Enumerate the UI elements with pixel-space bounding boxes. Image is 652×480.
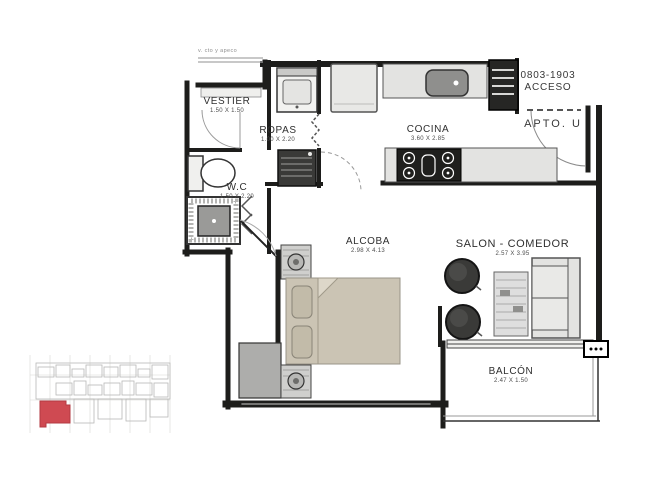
floor-plan-page: v. cto y apeco VESTIER 1.50 X 1.50 ROPAS… [0,0,652,480]
meter-box [584,341,608,357]
vestier-window [198,58,263,97]
closet-block [239,343,281,398]
wc-label: W.C [207,182,267,194]
cocina-label-block: COCINA 3.60 X 2.85 [393,124,463,142]
balcony-window [447,340,593,348]
washer [277,68,317,112]
wc-label-block: W.C 1.50 X 2.20 [207,182,267,200]
ropas-label: ROPAS [243,125,313,137]
sofa [532,258,580,338]
coffee-table-rug [494,272,528,336]
window-annotation: v. cto y apeco [198,48,237,54]
alcoba-dims: 2.98 X 4.13 [333,248,403,255]
dryer [278,150,316,186]
corridor-door-arc [321,152,361,190]
bifold-door [312,114,319,146]
acceso-label: ACCESO [512,82,584,94]
ropas-dims: 1.00 X 2.20 [243,137,313,144]
balcon-label: BALCÓN [480,366,542,378]
ropas-label-block: ROPAS 1.00 X 2.20 [243,125,313,143]
building-keyplan [30,355,170,433]
salon-chair-2 [446,305,482,339]
bed [286,278,400,364]
salon-label-block: SALON - COMEDOR 2.57 X 3.95 [455,238,570,258]
salon-chair-1 [445,259,481,293]
kitchen-sink [426,70,468,96]
balcon-label-block: BALCÓN 2.47 X 1.50 [480,366,542,384]
wc-dims: 1.50 X 2.20 [207,194,267,201]
fridge [331,64,377,112]
stove [397,149,461,181]
vestier-label-block: VESTIER 1.50 X 1.50 [191,96,263,114]
vestier-dims: 1.50 X 1.50 [191,108,263,115]
keyplan-highlight-unit [40,401,70,427]
alcoba-label: ALCOBA [333,236,403,248]
cocina-label: COCINA [393,124,463,136]
apto-label: APTO. U [517,118,589,131]
nightstand-bottom [281,365,311,398]
balcon-dims: 2.47 X 1.50 [480,378,542,385]
shower [187,197,240,244]
alcoba-label-block: ALCOBA 2.98 X 4.13 [333,236,403,254]
apartment-label-block: APTO. U [517,118,589,131]
cocina-dims: 3.60 X 2.85 [393,136,463,143]
vestier-door-arc [202,110,240,148]
salon-dims: 2.57 X 3.95 [455,251,570,258]
vestier-label: VESTIER [191,96,263,108]
unit-range-label: 0803-1903 [512,70,584,82]
salon-label: SALON - COMEDOR [455,238,570,251]
access-label-block: 0803-1903 ACCESO [512,70,584,93]
nightstand-top [281,245,311,279]
